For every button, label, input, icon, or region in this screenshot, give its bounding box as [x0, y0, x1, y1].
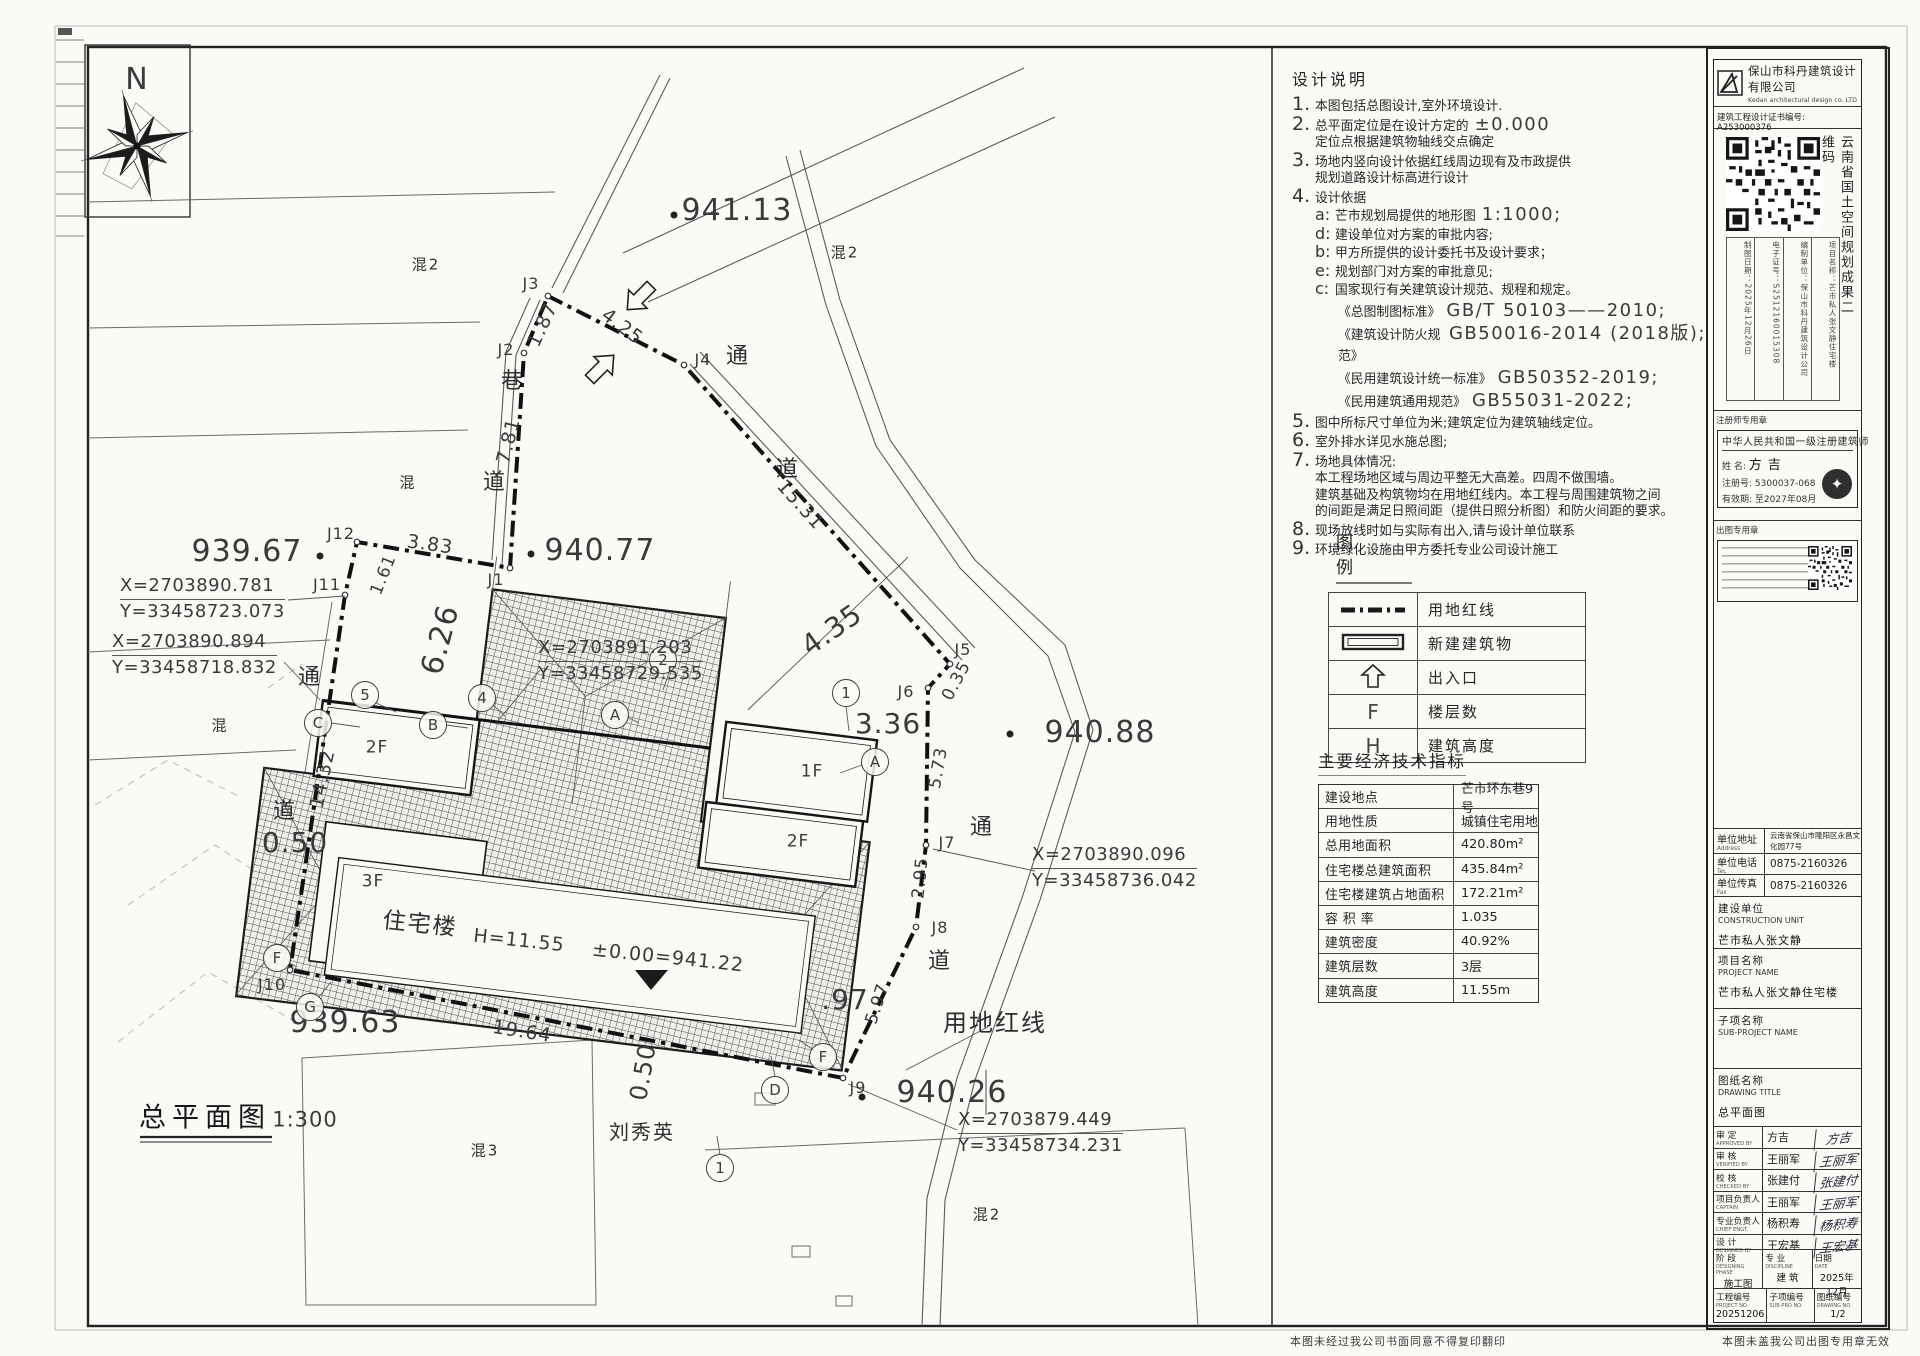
number-col: 工程编号PROJECT NO.20251206 [1714, 1289, 1766, 1322]
title-block-inner: 保山市科丹建筑设计有限公司 Kedan architectural design… [1713, 59, 1862, 1323]
project-name-section: 项目名称 PROJECT NAME 芒市私人张文静住宅楼 [1714, 948, 1861, 1008]
design-notes: 设计说明 1.本图包括总图设计,室外环境设计.2.总平面定位是在设计方定的±0.… [1292, 66, 1706, 560]
company-logo-icon [1717, 70, 1743, 96]
design-note-line: 《民用建筑设计统一标准》GB50352-2019; [1292, 367, 1706, 390]
note-text: 《民用建筑通用规范》 [1338, 392, 1466, 413]
grid-bubble: 4 [468, 684, 496, 712]
econ-value: 3层 [1453, 954, 1538, 977]
role-en: APPROVED BY [1716, 1141, 1762, 1147]
note-number: 8. [1292, 521, 1315, 538]
boundary-point-label: J3 [523, 276, 540, 292]
coordinate-label: X=2703890.781Y=33458723.073 [120, 574, 285, 625]
spot-elevation: 939.67 [192, 537, 303, 567]
note-code: GB50016-2014 (2018版); [1449, 323, 1706, 344]
road-label: 巷 [501, 371, 525, 393]
address-value: 云南省保山市隆阳区永昌文化园77号 [1764, 829, 1861, 853]
coordinate-y: Y=33458718.832 [112, 656, 277, 680]
econ-row: 建筑层数3层 [1319, 954, 1538, 978]
note-text: 《建筑设计防火规范》 [1338, 325, 1443, 367]
note-number: 6. [1292, 432, 1315, 449]
number-col: 图纸编号DRAWING NO.1/2 [1814, 1289, 1861, 1322]
coordinate-y: Y=33458729.535 [538, 662, 703, 686]
red-line-symbol [1338, 605, 1408, 615]
issue-stamp-section: 出图专用章 [1714, 520, 1861, 603]
dimension: 3.83 [406, 532, 455, 557]
road-label: 道 [928, 951, 952, 973]
econ-value: 435.84m² [1453, 858, 1538, 881]
econ-row: 建筑密度40.92% [1319, 930, 1538, 954]
design-note-line: 6.室外排水详见水施总图; [1292, 432, 1706, 452]
dimension: 6.26 [417, 602, 464, 678]
econ-label: 用地性质 [1319, 811, 1453, 830]
dimension: 1.61 [368, 552, 399, 597]
road-label: 道 [776, 459, 800, 481]
drawing-title-section: 图纸名称 DRAWING TITLE 总平面图 [1714, 1068, 1861, 1126]
parcel-label: 混 [399, 476, 416, 491]
role-zh: 审 核 [1716, 1149, 1762, 1162]
company-name-en: Kedan architectural design co. LTD [1748, 97, 1858, 104]
grid-bubble: 5 [351, 681, 379, 709]
spot-elevation: 940.26 [897, 1078, 1008, 1108]
parcel-label: 混3 [471, 1144, 500, 1159]
grid-bubble: A [601, 701, 629, 729]
legend-row: F 楼层数 [1329, 695, 1586, 729]
note-text: 规划道路设计标高进行设计 [1315, 171, 1469, 188]
legend-table: 用地红线 新建建筑物 出入口 F 楼层数 H 建筑高度 [1328, 592, 1586, 763]
signer-name: 王丽军 [1762, 1149, 1815, 1170]
dimension: 4.35 [797, 600, 867, 661]
coordinate-label: X=2703890.096Y=33458736.042 [1032, 843, 1197, 894]
coordinate-label: X=2703890.894Y=33458718.832 [112, 630, 277, 681]
road-label: 通 [726, 346, 750, 368]
phase-row: 阶 段DESIGNING PHASE施工图专 业DISCIPLINE建 筑日期D… [1714, 1249, 1861, 1288]
title-block: 保山市科丹建筑设计有限公司 Kedan architectural design… [1706, 47, 1890, 1330]
note-text: 图中所标尺寸单位为米;建筑定位为建筑轴线定位。 [1315, 416, 1601, 433]
spot-elevation: 940.88 [1045, 718, 1156, 748]
grid-bubble: 1 [832, 679, 860, 707]
building-height: H=11.55 [472, 927, 565, 955]
road-label: 通 [298, 667, 322, 689]
design-note-line: 7.场地具体情况: [1292, 452, 1706, 472]
note-code: ±0.000 [1475, 117, 1551, 134]
note-text: 总平面定位是在设计方定的 [1315, 119, 1469, 136]
economic-indicators: 主要经济技术指标 建设地点芒市环东巷9号用地性质城镇住宅用地总用地面积420.8… [1318, 748, 1539, 1003]
sub-project-section: 子项名称 SUB-PROJECT NAME [1714, 1008, 1861, 1068]
econ-row: 建筑高度11.55m [1319, 979, 1538, 1002]
econ-value: 172.21m² [1453, 882, 1538, 905]
signature-block: 审 定APPROVED BY方吉方吉审 核VERIFIED BY王丽军王丽军校 … [1714, 1126, 1861, 1249]
phase-col: 日期DATE2025年12月 [1812, 1250, 1861, 1288]
note-text: 芒市规划局提供的地形图 [1335, 209, 1476, 226]
signer-name: 张建付 [1762, 1170, 1815, 1191]
parcel-label: 混2 [831, 246, 860, 261]
phase-col: 专 业DISCIPLINE建 筑 [1762, 1250, 1811, 1288]
signature-role: 项目负责人CAPTAIN [1714, 1192, 1762, 1213]
role-zh: 设 计 [1716, 1235, 1762, 1248]
design-note-line: 3.场地内竖向设计依据红线周边现有及市政提供 [1292, 152, 1706, 172]
econ-label: 建设地点 [1319, 787, 1453, 806]
stamp-name: 方吉 [1749, 458, 1787, 473]
grid-bubble: D [761, 1076, 789, 1104]
econ-label: 建筑层数 [1319, 956, 1453, 975]
design-note-line: a:芒市规划局提供的地形图1:1000; [1292, 207, 1706, 226]
qr-info-col: 制图日期：2025年12月26日 [1727, 238, 1755, 400]
grid-bubble: A [861, 748, 889, 776]
note-code: GB50352-2019; [1498, 367, 1659, 388]
design-note-line: 规划道路设计标高进行设计 [1292, 171, 1706, 188]
grid-bubble: 1 [706, 1154, 734, 1182]
design-notes-title: 设计说明 [1292, 66, 1706, 90]
role-en: CHECKED BY [1716, 1184, 1762, 1190]
note-number: 7. [1292, 452, 1315, 469]
neighbor-owner-label: 刘秀英 [609, 1122, 675, 1142]
note-number: 2. [1292, 116, 1315, 133]
signature-row: 审 定APPROVED BY方吉方吉 [1714, 1127, 1861, 1148]
parcel-label: 混2 [973, 1208, 1002, 1223]
role-zh: 项目负责人 [1716, 1192, 1762, 1205]
qr-info-table: 制图日期：2025年12月26日 电子证号：S2512160015308 编制单… [1726, 237, 1840, 401]
phase-col-label: 阶 段 [1716, 1252, 1760, 1264]
footer-disclaimer-right: 本图未盖我公司出图专用章无效 [1722, 1333, 1890, 1349]
boundary-point-label: J4 [695, 352, 712, 368]
company-section: 保山市科丹建筑设计有限公司 Kedan architectural design… [1714, 60, 1861, 106]
floor-label: 3F [362, 874, 385, 891]
note-code: GB/T 50103——2010; [1446, 300, 1666, 321]
boundary-point-label: J2 [498, 342, 515, 358]
design-note-line: b:甲方所提供的设计委托书及设计要求； [1292, 244, 1706, 263]
qr-info-col: 电子证号：S2512160015308 [1755, 238, 1783, 400]
stamp-valid: 至2027年08月 [1755, 495, 1816, 505]
grid-bubble: C [304, 709, 332, 737]
econ-row: 用地性质城镇住宅用地 [1319, 809, 1538, 833]
note-number: 4. [1292, 188, 1315, 205]
site-plan-sheet: 941.13940.77939.67940.88939.63940.26.976… [0, 0, 1920, 1356]
legend-row: 用地红线 [1329, 593, 1586, 627]
phase-col-value: 建 筑 [1765, 1270, 1809, 1284]
dimension: 19.64 [491, 1018, 553, 1046]
dimension: 15.31 [773, 477, 827, 534]
design-note-line: 建筑基础及构筑物均在用地红线内。本工程与周围建筑物之间 [1292, 488, 1706, 505]
number-col: 子项编号SUB-PRO NO. [1766, 1289, 1813, 1322]
econ-label: 容 积 率 [1319, 908, 1453, 927]
note-text: 《总图制图标准》 [1338, 302, 1440, 323]
coordinate-x: X=2703891.203 [538, 636, 703, 662]
econ-row: 住宅楼总建筑面积435.84m² [1319, 858, 1538, 882]
econ-table: 建设地点芒市环东巷9号用地性质城镇住宅用地总用地面积420.80m²住宅楼总建筑… [1318, 784, 1539, 1003]
dimension: 5.73 [927, 746, 951, 790]
parcel-label: 混2 [412, 258, 441, 273]
signature-handwriting: 方吉 [1814, 1125, 1863, 1150]
building-name: 住宅楼 [382, 910, 459, 941]
econ-value: 城镇住宅用地 [1453, 809, 1538, 832]
number-col-label: 子项编号 [1769, 1291, 1811, 1303]
north-letter: N [125, 65, 148, 95]
phase-col: 阶 段DESIGNING PHASE施工图 [1714, 1250, 1762, 1288]
number-col-value: 20251206 [1716, 1309, 1764, 1320]
signer-name: 王丽军 [1762, 1192, 1815, 1213]
number-col-label: 工程编号 [1716, 1291, 1764, 1303]
econ-label: 建筑密度 [1319, 932, 1453, 951]
dimension: 14.32 [308, 748, 339, 810]
boundary-point-label: J10 [258, 977, 286, 993]
boundary-point-label: J1 [488, 572, 505, 588]
dimension: 0.50 [626, 1042, 660, 1103]
dimension: 2.95 [910, 856, 931, 899]
project-name-value: 芒市私人张文静住宅楼 [1718, 984, 1857, 1000]
coordinate-x: X=2703890.096 [1032, 843, 1197, 869]
boundary-point-label: J6 [898, 684, 915, 700]
boundary-point-label: J5 [955, 642, 972, 658]
note-number: 9. [1292, 540, 1315, 557]
role-en: VERIFIED BY [1716, 1162, 1762, 1168]
stamp-title: 中华人民共和国一级注册建筑师 [1722, 433, 1853, 451]
round-seal-icon: ✦ [1822, 469, 1852, 499]
coordinate-label: X=2703879.449Y=33458734.231 [958, 1108, 1123, 1159]
design-note-line: 定位点根据建筑物轴线交点确定 [1292, 135, 1706, 152]
road-label: 道 [273, 801, 297, 823]
note-letter: a: [1315, 207, 1335, 224]
signature-role: 专业负责人CHIEF ENGT. [1714, 1213, 1762, 1234]
econ-row: 建设地点芒市环东巷9号 [1319, 785, 1538, 809]
signature-row: 校 核CHECKED BY张建付张建付 [1714, 1169, 1861, 1191]
floor-label: 2F [366, 740, 389, 757]
econ-title: 主要经济技术指标 [1318, 748, 1466, 776]
role-zh: 专业负责人 [1716, 1214, 1762, 1227]
design-note-line: 的间距是满足日照间距（提供日照分析图）和防火间距的要求。 [1292, 504, 1706, 521]
coordinate-x: X=2703890.894 [112, 630, 277, 656]
dimension: 4.25 [598, 305, 646, 348]
note-letter: b: [1315, 244, 1335, 261]
signer-name: 杨积寿 [1762, 1213, 1815, 1234]
note-letter: d: [1315, 226, 1335, 243]
certificate-number: 建筑工程设计证书编号: A253000376 [1714, 106, 1861, 128]
note-number: 5. [1292, 413, 1315, 430]
design-note-line: 本工程场地区域与周边平整无大高差。四周不做围墙。 [1292, 471, 1706, 488]
dimension: 0.35 [940, 659, 975, 704]
phase-col-label-en: DESIGNING PHASE [1716, 1264, 1760, 1276]
econ-value: 420.80m² [1453, 833, 1538, 856]
design-note-line: 《民用建筑通用规范》GB55031-2022; [1292, 390, 1706, 413]
signature-role: 审 核VERIFIED BY [1714, 1149, 1762, 1170]
drawing-scale: 1:300 [272, 1110, 338, 1131]
issue-stamp [1717, 540, 1858, 602]
number-col-value: 1/2 [1817, 1309, 1859, 1320]
design-note-line: 1.本图包括总图设计,室外环境设计. [1292, 96, 1706, 116]
role-en: CAPTAIN [1716, 1205, 1762, 1211]
dimension: 0.50 [262, 829, 328, 857]
boundary-point-label: J11 [313, 577, 341, 593]
note-code: GB55031-2022; [1472, 390, 1633, 411]
design-note-line: e:规划部门对方案的审批意见; [1292, 263, 1706, 282]
note-text: 规划部门对方案的审批意见; [1335, 265, 1493, 282]
legend-row: 出入口 [1329, 661, 1586, 695]
econ-label: 住宅楼总建筑面积 [1319, 860, 1453, 879]
econ-value: 芒市环东巷9号 [1453, 785, 1538, 808]
design-notes-list: 1.本图包括总图设计,室外环境设计.2.总平面定位是在设计方定的±0.000定位… [1292, 96, 1706, 560]
grid-bubble: F [263, 944, 291, 972]
address-row: 单位地址 Address 云南省保山市隆阳区永昌文化园77号 [1714, 828, 1861, 853]
red-line-label: 用地红线 [943, 1011, 1047, 1035]
note-number: 1. [1292, 96, 1315, 113]
note-text: 的间距是满足日照间距（提供日照分析图）和防火间距的要求。 [1315, 504, 1673, 521]
design-note-line: 2.总平面定位是在设计方定的±0.000 [1292, 116, 1706, 136]
fax-row: 单位传真 Fax 0875-2160326 [1714, 874, 1861, 896]
dimension: 7.81 [494, 416, 524, 466]
note-text: 场地内竖向设计依据红线周边现有及市政提供 [1315, 155, 1571, 172]
coordinate-label: X=2703891.203Y=33458729.535 [538, 636, 703, 687]
numbers-row: 工程编号PROJECT NO.20251206子项编号SUB-PRO NO.图纸… [1714, 1288, 1861, 1322]
road-label: 道 [483, 472, 507, 494]
building-datum: ±0.00=941.22 [591, 941, 745, 976]
entrance-symbol [1358, 663, 1388, 689]
note-text: 国家现行有关建筑设计规范、规程和规定。 [1335, 283, 1578, 300]
econ-value: 11.55m [1453, 979, 1538, 1002]
signer-name: 方吉 [1762, 1127, 1815, 1148]
spot-elevation: 940.77 [545, 536, 656, 566]
boundary-point-label: J9 [850, 1080, 867, 1096]
signature-handwriting: 杨积寿 [1814, 1211, 1863, 1236]
signature-row: 专业负责人CHIEF ENGT.杨积寿杨积寿 [1714, 1212, 1861, 1234]
note-text: 建设单位对方案的审批内容; [1335, 228, 1493, 245]
qr-info-col: 编制单位：保山市科丹建筑设计公司 [1784, 238, 1812, 400]
design-note-line: 《建筑设计防火规范》GB50016-2014 (2018版); [1292, 323, 1706, 367]
blank-section [1714, 603, 1861, 828]
phase-col-label: 专 业 [1765, 1252, 1809, 1264]
legend: 图 例 用地红线 新建建筑物 出入口 F 楼层数 [1328, 528, 1586, 763]
note-text: 本工程场地区域与周边平整无大高差。四周不做围墙。 [1315, 471, 1622, 488]
footer-disclaimer-left: 本图未经过我公司书面同意不得复印翻印 [1290, 1333, 1506, 1349]
construction-unit-value: 芒市私人张文静 [1718, 932, 1857, 948]
issue-stamp-text-lines [1722, 547, 1808, 595]
parcel-label: 混 [211, 719, 228, 734]
new-building-symbol [1340, 633, 1406, 651]
architect-stamp-section: 注册师专用章 中华人民共和国一级注册建筑师 姓 名: 方吉 注册号: 53000… [1714, 410, 1861, 520]
econ-value: 40.92% [1453, 930, 1538, 953]
issue-stamp-qr [1808, 546, 1852, 590]
drawing-title-value: 总平面图 [1718, 1104, 1857, 1120]
legend-row: 新建建筑物 [1329, 627, 1586, 661]
coordinate-y: Y=33458736.042 [1032, 869, 1197, 893]
tel-value: 0875-2160326 [1764, 854, 1861, 874]
grid-bubble: F [809, 1043, 837, 1071]
floor-label: 1F [801, 764, 824, 781]
signature-role: 校 核CHECKED BY [1714, 1170, 1762, 1191]
design-note-line: 《总图制图标准》GB/T 50103——2010; [1292, 300, 1706, 323]
note-text: 定位点根据建筑物轴线交点确定 [1315, 135, 1494, 152]
spot-elevation: .97 [821, 986, 869, 1014]
stamp-reg: 5300037-068 [1755, 479, 1816, 489]
company-name: 保山市科丹建筑设计有限公司 [1748, 63, 1858, 95]
design-note-line: d:建设单位对方案的审批内容; [1292, 226, 1706, 245]
grid-bubble: B [419, 711, 447, 739]
boundary-point-label: J8 [932, 920, 949, 936]
stamp-valid-label: 有效期: [1722, 495, 1752, 505]
architect-stamp: 中华人民共和国一级注册建筑师 姓 名: 方吉 注册号: 5300037-068 … [1717, 430, 1858, 508]
econ-label: 总用地面积 [1319, 835, 1453, 854]
note-number: 3. [1292, 152, 1315, 169]
note-letter: c: [1315, 281, 1335, 298]
phase-col-label: 日期 [1815, 1252, 1859, 1264]
econ-label: 住宅楼建筑占地面积 [1319, 884, 1453, 903]
note-text: 建筑基础及构筑物均在用地红线内。本工程与周围建筑物之间 [1315, 488, 1661, 505]
stamp-header: 注册师专用章 [1714, 411, 1861, 429]
note-text: 室外排水详见水施总图; [1315, 435, 1447, 452]
boundary-point-label: J7 [939, 835, 956, 851]
note-text: 场地具体情况: [1315, 455, 1396, 472]
dimension: 1.87 [525, 300, 562, 350]
role-zh: 审 定 [1716, 1128, 1762, 1141]
stamp-name-label: 姓 名: [1722, 462, 1746, 472]
design-note-line: c:国家现行有关建筑设计规范、规程和规定。 [1292, 281, 1706, 300]
note-letter: e: [1315, 263, 1335, 280]
role-en: CHIEF ENGT. [1716, 1227, 1762, 1233]
qr-info-col: 项目名称：芒市私人张文静住宅楼 [1812, 238, 1839, 400]
stamp-reg-label: 注册号: [1722, 479, 1752, 489]
role-zh: 校 核 [1716, 1171, 1762, 1184]
econ-label: 建筑高度 [1319, 981, 1453, 1000]
grid-bubble: G [296, 993, 324, 1021]
construction-unit-section: 建设单位 CONSTRUCTION UNIT 芒市私人张文静 [1714, 896, 1861, 948]
road-label: 通 [970, 817, 994, 839]
spot-elevation: 941.13 [682, 196, 793, 226]
legend-title: 图 例 [1336, 528, 1412, 584]
floor-label: 2F [787, 834, 810, 851]
design-note-line: 5.图中所标尺寸单位为米;建筑定位为建筑轴线定位。 [1292, 413, 1706, 433]
note-text: 甲方所提供的设计委托书及设计要求； [1335, 246, 1553, 263]
number-col-label-en: SUB-PRO NO. [1769, 1303, 1811, 1309]
drawing-title-label: 总平面图 [139, 1105, 271, 1132]
issue-stamp-header: 出图专用章 [1714, 521, 1861, 539]
signature-handwriting: 张建付 [1814, 1168, 1863, 1193]
signature-row: 项目负责人CAPTAIN王丽军王丽军 [1714, 1191, 1861, 1213]
econ-row: 总用地面积420.80m² [1319, 833, 1538, 857]
econ-row: 容 积 率1.035 [1319, 906, 1538, 930]
note-text: 《民用建筑设计统一标准》 [1338, 369, 1492, 390]
tel-row: 单位电话 TeL 0875-2160326 [1714, 853, 1861, 874]
signature-row: 审 核VERIFIED BY王丽军王丽军 [1714, 1148, 1861, 1170]
econ-row: 住宅楼建筑占地面积172.21m² [1319, 882, 1538, 906]
floor-count-symbol: F [1367, 700, 1379, 724]
note-code: 1:1000; [1482, 207, 1562, 224]
coordinate-x: X=2703879.449 [958, 1108, 1123, 1134]
coordinate-y: Y=33458723.073 [120, 600, 285, 624]
coordinate-y: Y=33458734.231 [958, 1134, 1123, 1158]
signature-role: 审 定APPROVED BY [1714, 1127, 1762, 1148]
fax-value: 0875-2160326 [1764, 875, 1861, 896]
planning-qr-section: 云南省国土空间规划成果二维码 制图日期：2025年12月26日 电子证号：S25… [1714, 128, 1861, 410]
coordinate-x: X=2703890.781 [120, 574, 285, 600]
dimension: 3.36 [855, 710, 921, 738]
boundary-point-label: J12 [327, 526, 355, 542]
econ-value: 1.035 [1453, 906, 1538, 929]
number-col-label: 图纸编号 [1817, 1291, 1859, 1303]
planning-qr-code [1726, 137, 1820, 231]
